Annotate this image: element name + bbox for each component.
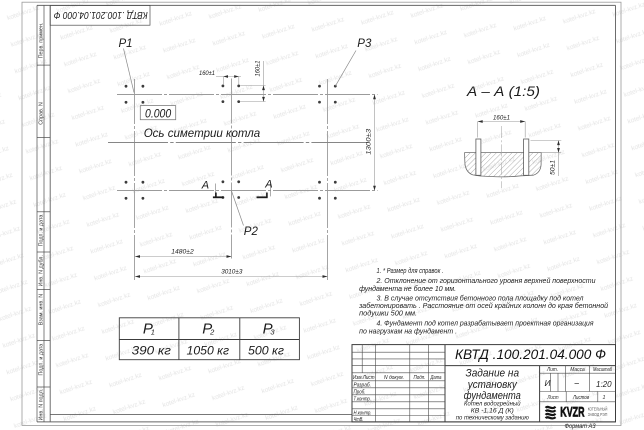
svg-text:Т.контр.: Т.контр. [354,397,372,403]
svg-text:Перв. примен.: Перв. примен. [38,23,44,59]
svg-text:160±1: 160±1 [255,60,262,76]
svg-text:Формат А3: Формат А3 [565,424,597,430]
svg-text:Подп. и дата: Подп. и дата [38,344,44,376]
svg-text:1050 кг: 1050 кг [187,344,230,358]
svg-text:–: – [574,379,580,388]
svg-text:ЗАВОД РЭП: ЗАВОД РЭП [588,412,608,417]
svg-text:фундамента: фундамента [464,390,521,402]
svg-text:Задание на: Задание на [466,368,520,380]
svg-text:160±1: 160±1 [199,70,215,77]
svg-text:3010±3: 3010±3 [221,268,243,275]
svg-text:P3: P3 [357,38,372,50]
svg-text:И: И [545,378,552,388]
svg-text:Масштаб: Масштаб [593,367,613,373]
svg-text:Н.контр.: Н.контр. [354,410,372,416]
svg-text:КВТД .100.201.04.000 Ф: КВТД .100.201.04.000 Ф [455,347,606,362]
svg-text:P1: P1 [119,38,133,50]
svg-text:Инв. N дубл.: Инв. N дубл. [38,255,44,287]
svg-text:1: 1 [151,327,155,336]
svg-text:N докум.: N докум. [384,375,404,381]
svg-text:390 кг: 390 кг [132,344,171,358]
svg-text:Лист: Лист [547,395,559,401]
svg-text:1:20: 1:20 [596,380,612,389]
svg-text:1480±2: 1480±2 [171,249,194,256]
svg-text:Изм.Лист: Изм.Лист [353,375,375,381]
svg-text:Подп. и дата: Подп. и дата [38,215,44,247]
svg-text:0.000: 0.000 [145,106,171,120]
svg-text:ЧтВ.: ЧтВ. [354,417,364,423]
svg-text:КВ -1,16 Д (К): КВ -1,16 Д (К) [471,409,514,415]
svg-text:Справ. N: Справ. N [38,102,44,125]
svg-text:КВТД .100.201.04.000 Ф: КВТД .100.201.04.000 Ф [54,9,148,20]
svg-text:Масса: Масса [570,367,585,373]
svg-text:Котел водогрейный: Котел водогрейный [464,401,521,408]
svg-text:Ось симетрии котла: Ось симетрии котла [144,126,261,140]
svg-text:Взам. инв. N: Взам. инв. N [38,294,44,326]
svg-text:по техническому заданию: по техническому заданию [456,416,529,422]
svg-text:по нагрузкам на фундамент .: по нагрузкам на фундамент . [359,326,457,335]
svg-text:Листов: Листов [572,395,589,401]
svg-text:Инв. N подл.: Инв. N подл. [38,389,44,421]
svg-text:Лит.: Лит. [546,367,558,373]
svg-text:Подп.: Подп. [414,375,426,381]
svg-text:подушки 500 мм.: подушки 500 мм. [359,309,417,318]
svg-text:А: А [201,179,209,191]
svg-text:50±1: 50±1 [549,160,556,175]
svg-text:KVZR: KVZR [560,405,584,420]
svg-text:Дата: Дата [430,375,442,381]
svg-text:P2: P2 [244,226,259,238]
svg-text:А – А (1:5): А – А (1:5) [466,84,540,99]
svg-text:Разраб.: Разраб. [354,383,372,389]
svg-text:2: 2 [209,327,215,336]
svg-text:500 кг: 500 кг [248,344,284,358]
svg-text:1300±3: 1300±3 [366,128,373,155]
svg-text:фундамента не более 10 мм.: фундамента не более 10 мм. [359,284,456,293]
svg-text:Проб.: Проб. [354,390,366,396]
svg-text:160±1: 160±1 [493,115,510,122]
svg-text:А: А [264,179,272,191]
svg-text:1. * Размер для справок .: 1. * Размер для справок . [377,266,444,275]
svg-text:1: 1 [603,395,606,401]
